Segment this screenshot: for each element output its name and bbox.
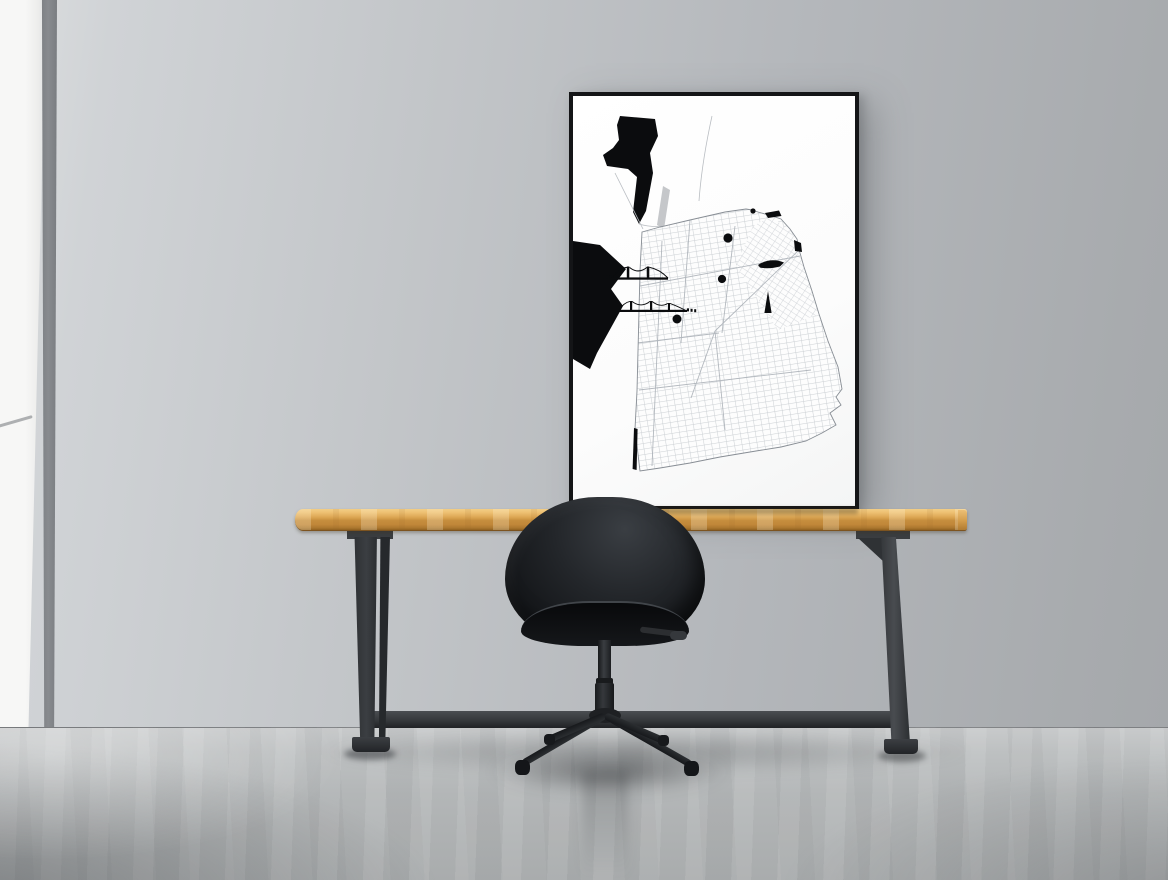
ocean-beach-shoreline xyxy=(633,428,638,470)
landmark-dot xyxy=(723,233,732,242)
street-grid xyxy=(635,209,842,471)
chair-foot-rear-left xyxy=(544,734,555,745)
landmark-dot xyxy=(673,315,682,324)
landmark-dot xyxy=(718,275,726,283)
tabletop-end-grain xyxy=(958,510,967,530)
shore-islet-blob xyxy=(750,208,755,213)
shore-islet-blob xyxy=(765,211,782,219)
chair-foot-rear-right xyxy=(658,735,669,746)
room-scene xyxy=(0,0,1168,880)
table-right-foot xyxy=(884,739,918,754)
table-left-foot xyxy=(352,737,390,752)
chair-foot-front-left xyxy=(515,760,530,775)
marin-headland-ink xyxy=(603,116,658,224)
chair-lever-handle xyxy=(670,631,687,640)
left-coast-ink-wedge xyxy=(573,241,626,369)
shore-islet-blob xyxy=(794,240,802,252)
city-street-map-art xyxy=(573,96,855,506)
framed-map-poster xyxy=(569,92,859,510)
chair-foot-front-right xyxy=(684,761,699,776)
chair-floor-reflection xyxy=(582,772,628,878)
ink-shadow-band xyxy=(657,186,670,229)
poster-paper xyxy=(573,96,855,506)
